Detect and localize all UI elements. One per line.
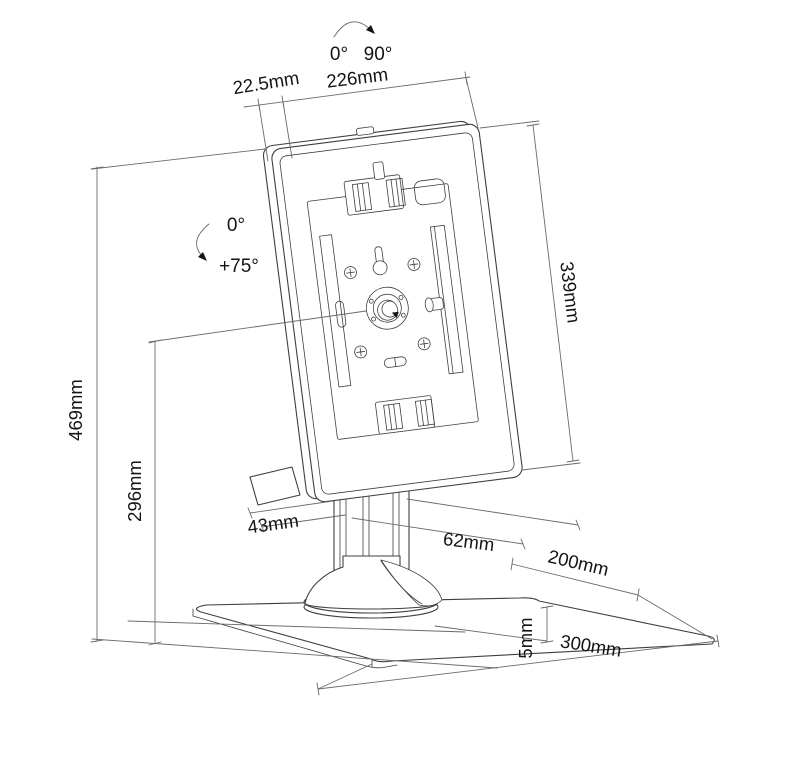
dim-line [407, 499, 578, 525]
dim-label-pivot-height: 296mm [124, 460, 145, 522]
dim-column-width: 43mm [246, 501, 345, 538]
dim-extension [92, 149, 265, 169]
rotation-start-label: 0° [330, 44, 348, 65]
technical-drawing: 22.5mm 226mm 339mm 469mm 296mm 43mm [0, 0, 796, 759]
tablet-enclosure [262, 113, 524, 504]
top-latch-body [344, 175, 404, 216]
dim-label-housing-thickness: 22.5mm [231, 67, 300, 98]
tilt-arrow-head [198, 252, 207, 261]
base-dome [304, 556, 442, 618]
dim-label-column-depth: 62mm [442, 528, 496, 555]
bottom-latch-body [375, 395, 435, 434]
dim-label-housing-width: 226mm [325, 63, 389, 91]
drawing-canvas: 22.5mm 226mm 339mm 469mm 296mm 43mm [0, 0, 796, 759]
rotation-range-callout: 0° 90° [330, 22, 392, 65]
tilt-start-label: 0° [227, 215, 245, 236]
base-plate [193, 598, 714, 668]
dim-label-total-height: 469mm [65, 379, 86, 441]
dim-extension [466, 78, 478, 128]
dim-label-base-thickness: 5mm [515, 617, 536, 658]
dim-extension [522, 463, 580, 470]
bottom-latch [375, 395, 435, 434]
rotation-arc-icon [334, 22, 372, 37]
tilt-range-callout: 0° +75° [197, 215, 259, 277]
dim-extension [318, 664, 372, 689]
dim-label-column-width: 43mm [246, 510, 300, 538]
tilt-end-label: +75° [219, 256, 259, 277]
dim-extension [480, 121, 539, 128]
tilt-bracket [250, 467, 300, 505]
rotation-end-label: 90° [364, 44, 393, 65]
top-latch-hook [373, 162, 385, 180]
dim-label-housing-height: 339mm [556, 260, 584, 324]
